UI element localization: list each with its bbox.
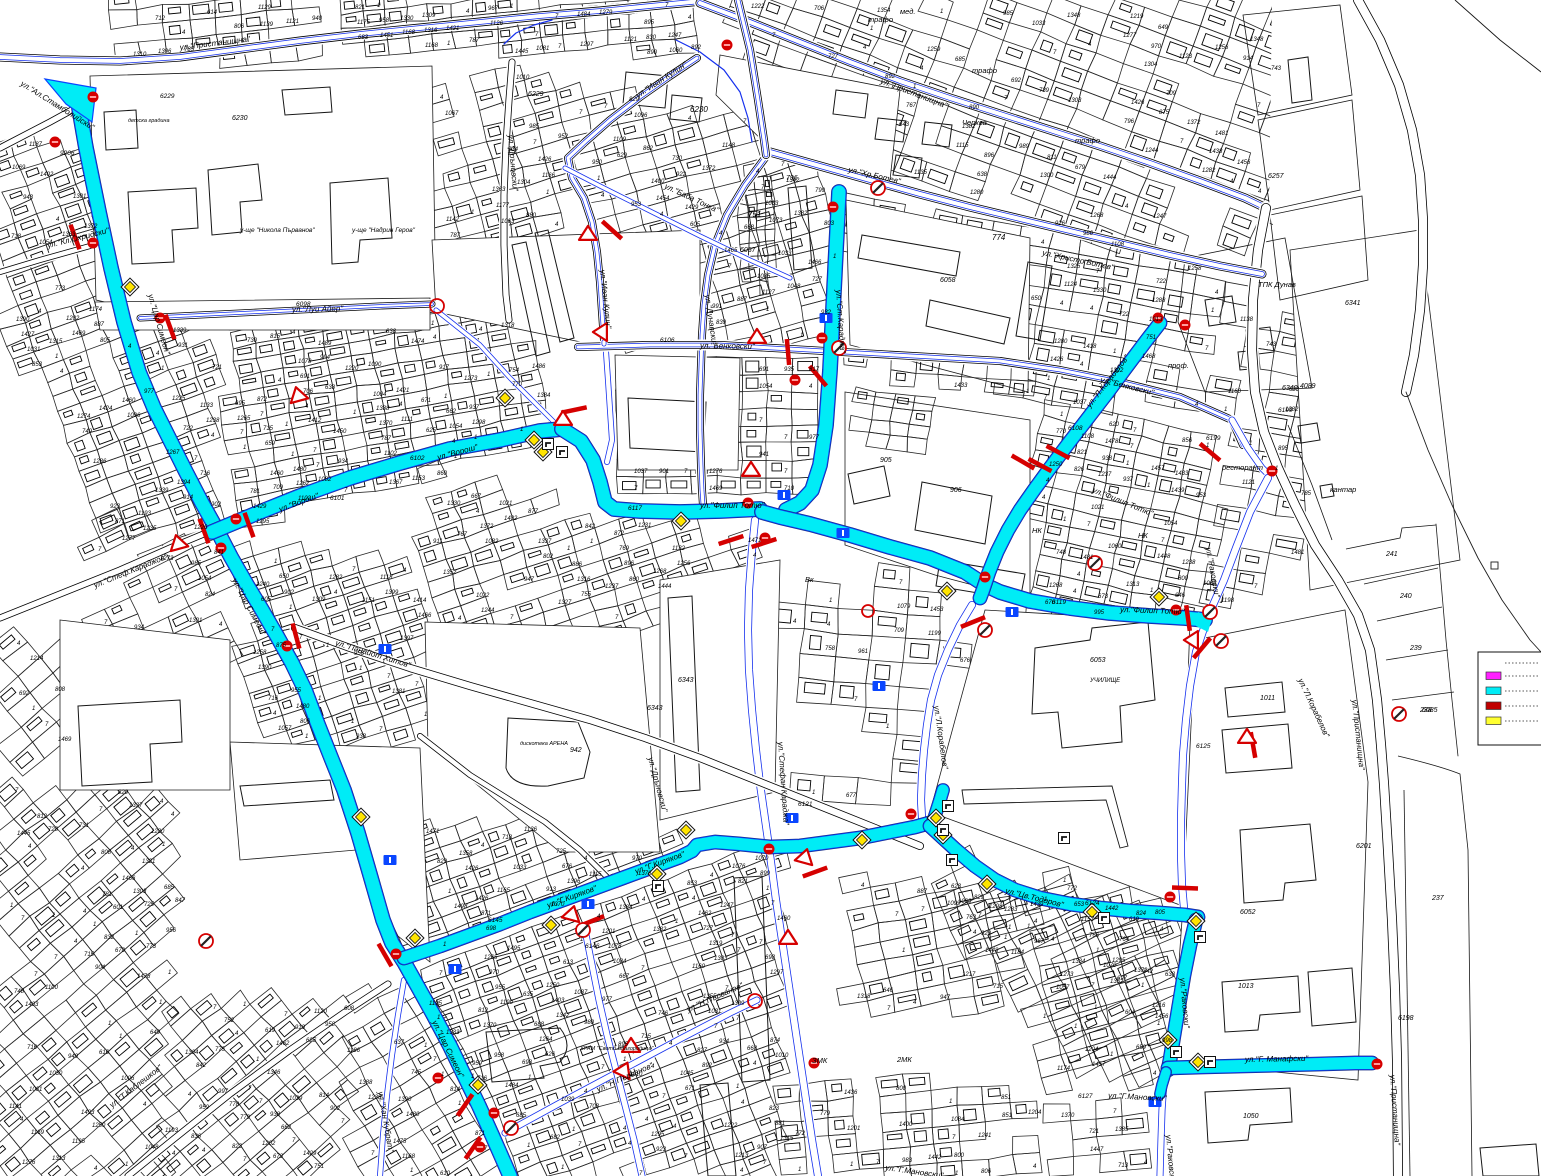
svg-text:1304: 1304 [1144,62,1158,68]
svg-text:926: 926 [1055,221,1066,227]
svg-text:1121: 1121 [624,37,637,43]
svg-text:779: 779 [820,1111,831,1117]
svg-text:1280: 1280 [151,829,165,835]
svg-text:812: 812 [478,1008,489,1014]
svg-text:635: 635 [523,992,534,998]
svg-text:1: 1 [829,598,832,604]
svg-text:716: 716 [200,471,211,477]
svg-text:892: 892 [691,45,702,51]
svg-text:1021: 1021 [1091,505,1104,511]
svg-text:1: 1 [597,176,600,182]
svg-text:1370: 1370 [379,421,393,427]
svg-text:902: 902 [211,502,222,508]
svg-text:1303: 1303 [714,956,728,962]
svg-text:6341: 6341 [1345,300,1361,307]
svg-text:709: 709 [894,628,905,634]
svg-text:1115: 1115 [589,872,602,878]
svg-text:1348: 1348 [1250,37,1264,43]
svg-text:824: 824 [205,592,216,598]
svg-text:2МК: 2МК [896,1055,912,1064]
svg-text:1250: 1250 [92,1123,106,1129]
svg-text:985: 985 [191,561,202,567]
svg-text:770: 770 [1056,429,1067,435]
svg-text:706: 706 [814,6,825,12]
svg-text:1033: 1033 [1032,21,1046,27]
svg-text:1: 1 [1157,1021,1160,1027]
svg-text:1: 1 [55,354,58,360]
svg-text:1: 1 [567,546,570,552]
svg-text:6145: 6145 [488,917,503,924]
svg-text:1478: 1478 [1105,439,1119,445]
svg-text:1031: 1031 [27,347,40,353]
svg-text:1342: 1342 [786,178,800,184]
svg-text:1108: 1108 [1081,434,1095,440]
svg-text:725: 725 [144,902,155,908]
svg-text:1: 1 [1113,349,1116,355]
svg-text:802: 802 [543,554,554,560]
svg-text:1054: 1054 [39,240,53,246]
svg-text:904: 904 [95,965,106,971]
svg-text:1495: 1495 [507,946,521,952]
svg-text:998: 998 [1162,1038,1173,1044]
svg-text:1258: 1258 [253,650,267,656]
svg-text:1031: 1031 [708,1009,721,1015]
svg-text:1247: 1247 [668,33,682,39]
svg-text:1: 1 [125,1162,128,1168]
svg-text:1318: 1318 [501,323,515,329]
svg-text:1429: 1429 [685,205,699,211]
svg-text:1339: 1339 [173,328,187,334]
svg-text:1198: 1198 [1221,598,1235,604]
svg-text:1319: 1319 [709,941,723,947]
svg-text:800: 800 [896,1086,907,1092]
svg-text:1084: 1084 [951,1117,965,1123]
svg-text:1: 1 [798,1167,801,1173]
svg-text:1141: 1141 [9,1104,22,1110]
svg-text:997: 997 [218,1089,229,1095]
svg-text:1: 1 [940,9,943,15]
svg-text:6057: 6057 [740,247,757,254]
svg-text:923: 923 [110,504,121,510]
svg-text:934: 934 [508,147,519,153]
svg-text:1: 1 [1249,441,1252,447]
svg-text:1363: 1363 [492,187,506,193]
svg-text:УЧИЛИЩЕ: УЧИЛИЩЕ [1089,678,1121,684]
svg-text:623: 623 [951,884,962,890]
svg-text:1135: 1135 [914,170,928,176]
svg-text:1115: 1115 [956,143,969,149]
svg-text:842: 842 [585,524,596,530]
svg-text:6199: 6199 [1206,435,1221,442]
svg-text:мед.: мед. [900,7,915,16]
svg-text:детска градина: детска градина [128,118,170,124]
svg-text:880: 880 [526,213,537,219]
svg-text:685: 685 [164,885,175,891]
svg-text:787: 787 [469,38,480,44]
svg-text:1: 1 [1047,376,1050,382]
svg-text:715: 715 [263,426,274,432]
svg-text:766: 766 [1089,933,1100,939]
svg-text:1244: 1244 [481,608,495,614]
svg-text:1478: 1478 [137,974,151,980]
svg-text:1: 1 [289,605,292,611]
svg-text:1090: 1090 [368,362,382,368]
svg-text:ЗМК: ЗМК [812,1056,828,1065]
svg-text:ул."Г. Манафски": ул."Г. Манафски" [1244,1054,1310,1064]
svg-text:1282: 1282 [1202,168,1216,174]
svg-text:1: 1 [318,696,321,702]
svg-text:977: 977 [144,389,155,395]
svg-text:1288: 1288 [1152,298,1166,304]
svg-text:745: 745 [411,1070,422,1076]
svg-text:1004: 1004 [373,392,387,398]
svg-text:767: 767 [457,532,468,538]
svg-text:751: 751 [748,210,761,219]
svg-text:ТПК Дунав: ТПК Дунав [1258,280,1296,289]
svg-text:953: 953 [1196,493,1207,499]
svg-text:1: 1 [1043,1014,1046,1020]
svg-text:836: 836 [191,1134,202,1140]
svg-text:1337: 1337 [129,803,143,809]
svg-text:1346: 1346 [267,1070,281,1076]
svg-text:1397: 1397 [400,636,414,642]
svg-text:995: 995 [1094,610,1105,616]
svg-text:815: 815 [270,334,281,340]
svg-text:1388: 1388 [359,1080,373,1086]
svg-text:1204: 1204 [1085,1047,1099,1053]
svg-text:1367: 1367 [389,480,403,486]
svg-text:6121: 6121 [798,801,813,808]
svg-text:739: 739 [1039,88,1050,94]
svg-text:895: 895 [1278,446,1289,452]
svg-text:1262: 1262 [296,481,310,487]
svg-text:1390: 1390 [398,1097,412,1103]
svg-text:1: 1 [471,210,474,216]
svg-text:1: 1 [1027,924,1030,930]
svg-text:638: 638 [325,385,336,391]
svg-text:1480: 1480 [406,1112,420,1118]
svg-text:1: 1 [1094,1005,1097,1011]
svg-text:770: 770 [512,382,523,388]
svg-text:1168: 1168 [402,30,416,36]
svg-text:1096: 1096 [634,113,648,119]
svg-text:1241: 1241 [978,1133,991,1139]
svg-text:911: 911 [433,539,443,545]
svg-text:821: 821 [355,5,365,11]
svg-text:841: 841 [214,550,224,556]
svg-text:1355: 1355 [703,994,717,1000]
svg-text:787: 787 [381,436,392,442]
svg-text:у-ще "Надрин Геров": у-ще "Надрин Геров" [351,226,416,234]
svg-text:710: 710 [784,486,795,492]
svg-text:1168: 1168 [402,1154,416,1160]
svg-text:1316: 1316 [577,577,591,583]
svg-text:1085: 1085 [757,274,771,280]
svg-text:1471: 1471 [748,538,761,544]
svg-text:637: 637 [394,1040,405,1046]
svg-text:1: 1 [850,1162,853,1168]
svg-text:1: 1 [590,539,593,545]
svg-text:1313: 1313 [1126,582,1140,588]
svg-text:773: 773 [146,944,157,950]
svg-text:1: 1 [119,1034,122,1040]
svg-text:938: 938 [270,1112,281,1118]
svg-text:1330: 1330 [447,501,461,507]
svg-text:1084: 1084 [613,959,627,965]
svg-text:трафо: трафо [972,66,997,75]
svg-text:1402: 1402 [40,172,54,178]
svg-text:743: 743 [1266,342,1277,348]
svg-text:805: 805 [1155,910,1166,916]
svg-text:1442: 1442 [1105,906,1119,912]
svg-text:1283: 1283 [1004,907,1018,913]
svg-text:937: 937 [469,405,480,411]
svg-text:1439: 1439 [1030,902,1044,908]
svg-text:769: 769 [619,546,630,552]
svg-text:1462: 1462 [698,911,712,917]
svg-text:1030: 1030 [49,1071,63,1077]
svg-text:6127: 6127 [1078,1093,1093,1100]
svg-text:1240: 1240 [256,582,270,588]
svg-text:1370: 1370 [551,902,565,908]
svg-text:1111: 1111 [401,417,413,423]
svg-text:764: 764 [1119,937,1130,943]
svg-text:1337: 1337 [538,539,552,545]
svg-text:853: 853 [687,881,698,887]
svg-text:1148: 1148 [722,143,736,149]
svg-text:851: 851 [1001,1095,1011,1101]
svg-text:1322: 1322 [1110,368,1124,374]
svg-text:1412: 1412 [308,418,322,424]
svg-text:1469: 1469 [58,737,72,743]
svg-text:952: 952 [558,134,569,140]
svg-text:1273: 1273 [160,556,174,562]
svg-text:970: 970 [1151,44,1162,50]
svg-text:1: 1 [32,706,35,712]
svg-text:662: 662 [446,409,457,415]
svg-text:1303: 1303 [1068,98,1082,104]
svg-text:1388: 1388 [376,406,390,412]
svg-text:1318: 1318 [857,994,871,1000]
svg-text:1: 1 [510,4,513,10]
svg-text:1321: 1321 [142,859,155,865]
svg-text:899: 899 [760,871,771,877]
svg-text:1460: 1460 [777,916,791,922]
svg-text:1237: 1237 [605,584,619,590]
svg-text:1: 1 [243,1002,246,1008]
svg-text:1: 1 [1063,878,1066,884]
svg-text:685: 685 [955,57,966,63]
svg-text:872: 872 [614,531,625,537]
svg-text:947: 947 [524,577,535,583]
svg-text:проф.: проф. [1168,361,1189,370]
svg-text:787: 787 [450,233,461,239]
svg-text:1033: 1033 [778,251,792,257]
svg-text:697: 697 [1117,976,1128,982]
svg-text:1433: 1433 [1175,471,1189,477]
svg-text:1136: 1136 [524,827,538,833]
svg-text:1333: 1333 [446,1030,460,1036]
svg-text:1348: 1348 [1067,13,1081,19]
svg-text:821: 821 [738,879,748,885]
svg-text:1352: 1352 [443,570,457,576]
svg-text:241: 241 [1385,551,1398,558]
svg-text:1310: 1310 [133,52,147,58]
svg-text:826: 826 [1074,467,1085,473]
svg-text:1201: 1201 [847,1126,860,1132]
svg-text:1: 1 [561,1165,564,1171]
svg-text:1153: 1153 [412,476,426,482]
svg-text:1421: 1421 [396,388,409,394]
svg-text:1399: 1399 [385,590,399,596]
svg-text:1081: 1081 [536,46,549,52]
svg-text:646: 646 [883,988,894,994]
svg-text:1438: 1438 [1209,149,1223,155]
svg-text:956: 956 [354,651,365,657]
svg-text:1070: 1070 [755,856,769,862]
svg-text:688: 688 [534,1022,545,1028]
svg-text:1330: 1330 [400,16,414,22]
svg-text:1039: 1039 [561,1097,575,1103]
svg-text:6230: 6230 [232,115,248,122]
svg-text:1370: 1370 [1061,1113,1075,1119]
svg-text:716: 716 [27,1045,38,1051]
svg-text:1: 1 [1063,517,1066,523]
svg-text:6053: 6053 [1090,657,1106,664]
svg-text:1: 1 [1275,466,1278,472]
svg-text:1238: 1238 [368,1095,382,1101]
svg-text:1316: 1316 [424,28,438,34]
svg-text:1: 1 [285,422,288,428]
svg-text:1: 1 [382,659,385,665]
svg-text:1121: 1121 [1242,480,1255,486]
svg-text:955: 955 [291,688,302,694]
svg-text:814: 814 [319,1093,330,1099]
svg-text:722: 722 [1119,312,1130,318]
svg-text:851: 851 [1002,1113,1012,1119]
svg-text:895: 895 [618,1042,629,1048]
svg-text:887: 887 [737,297,748,303]
svg-text:1424: 1424 [99,406,113,412]
svg-text:1276: 1276 [709,469,723,475]
svg-text:673: 673 [1098,594,1109,600]
svg-text:1480: 1480 [293,467,307,473]
svg-text:1: 1 [1150,588,1153,594]
svg-text:842: 842 [196,1063,207,1069]
svg-text:1: 1 [424,1043,427,1049]
svg-text:1: 1 [291,452,294,458]
svg-text:1304: 1304 [517,180,531,186]
svg-text:1250: 1250 [546,983,560,989]
svg-text:1: 1 [431,321,434,327]
svg-text:1132: 1132 [672,546,686,552]
svg-text:668: 668 [744,225,755,231]
svg-text:1301: 1301 [73,194,86,200]
svg-text:953: 953 [631,202,642,208]
svg-text:1082: 1082 [485,539,499,545]
svg-text:772: 772 [795,1131,806,1137]
svg-text:608: 608 [344,1006,355,1012]
svg-text:1297: 1297 [770,970,784,976]
svg-text:1327: 1327 [558,600,572,606]
svg-text:6102: 6102 [410,455,425,462]
svg-text:1048: 1048 [787,284,801,290]
svg-text:1: 1 [458,1101,461,1107]
svg-text:1454: 1454 [656,196,670,202]
svg-text:1100: 1100 [45,985,59,991]
svg-text:237: 237 [1431,895,1445,902]
svg-text:1: 1 [441,1072,444,1078]
svg-text:1: 1 [902,948,905,954]
svg-text:1: 1 [1206,443,1209,449]
svg-text:638: 638 [1165,972,1176,978]
svg-text:643: 643 [899,122,910,128]
svg-text:1301: 1301 [189,618,202,624]
svg-text:1: 1 [580,937,583,943]
svg-text:683: 683 [358,35,369,41]
svg-text:1382: 1382 [1285,407,1299,413]
svg-text:6198: 6198 [1398,1015,1414,1022]
svg-text:1436: 1436 [844,1090,858,1096]
svg-text:1222: 1222 [724,1123,738,1129]
svg-text:1298: 1298 [472,420,486,426]
svg-text:620: 620 [1109,422,1120,428]
svg-text:1384: 1384 [537,393,551,399]
svg-text:1498: 1498 [454,904,468,910]
svg-text:1468: 1468 [1142,354,1156,360]
svg-text:1256: 1256 [677,561,691,567]
svg-text:886: 886 [572,562,583,568]
svg-text:1: 1 [437,1015,440,1021]
svg-text:1: 1 [108,1021,111,1027]
svg-text:1471: 1471 [426,829,439,835]
svg-text:1426: 1426 [475,896,489,902]
svg-text:856: 856 [1182,438,1193,444]
svg-text:820: 820 [118,790,129,796]
svg-text:1054: 1054 [1164,521,1178,527]
svg-text:1033: 1033 [513,865,527,871]
svg-text:1280: 1280 [970,190,984,196]
svg-text:677: 677 [846,793,857,799]
svg-text:1: 1 [833,254,836,260]
svg-text:659: 659 [1136,1045,1147,1051]
svg-text:у-ще "Никола Първанов": у-ще "Никола Първанов" [239,227,315,234]
svg-text:1: 1 [410,1168,413,1174]
svg-text:трафо: трафо [868,15,893,24]
svg-text:1: 1 [168,970,171,976]
svg-text:649: 649 [150,1030,161,1036]
svg-text:1: 1 [800,333,803,339]
svg-text:994: 994 [320,355,331,361]
svg-text:728: 728 [48,827,59,833]
svg-text:1313: 1313 [52,1156,66,1162]
svg-text:800: 800 [954,1153,965,1159]
svg-text:1295: 1295 [256,519,270,525]
svg-text:829: 829 [974,895,985,901]
svg-text:1474: 1474 [411,339,425,345]
svg-text:1013: 1013 [1238,983,1254,990]
svg-text:749: 749 [82,429,93,435]
svg-text:803: 803 [824,221,835,227]
svg-text:1138: 1138 [1240,317,1254,323]
svg-text:605: 605 [261,597,272,603]
svg-text:1466: 1466 [122,876,136,882]
svg-text:1: 1 [351,719,354,725]
svg-text:823: 823 [232,1144,243,1150]
svg-text:1484: 1484 [505,1083,519,1089]
svg-text:1124: 1124 [1064,282,1078,288]
svg-text:890: 890 [647,50,658,56]
